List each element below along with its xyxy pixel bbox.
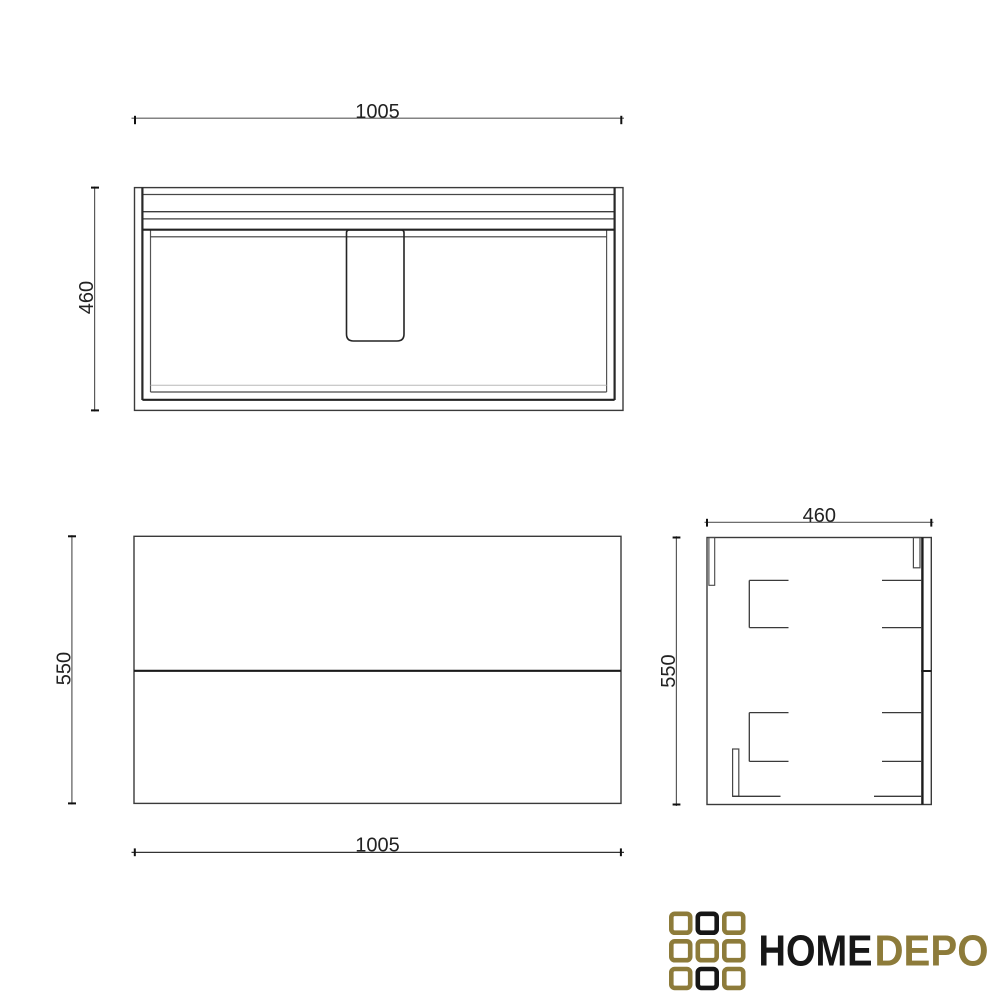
svg-text:DEPO: DEPO	[875, 928, 989, 976]
svg-text:1005: 1005	[355, 834, 400, 856]
svg-text:460: 460	[76, 281, 98, 314]
svg-text:550: 550	[54, 652, 76, 685]
svg-text:550: 550	[658, 654, 680, 687]
svg-text:1005: 1005	[355, 101, 400, 123]
svg-text:460: 460	[803, 505, 836, 527]
svg-text:HOME: HOME	[759, 928, 873, 976]
